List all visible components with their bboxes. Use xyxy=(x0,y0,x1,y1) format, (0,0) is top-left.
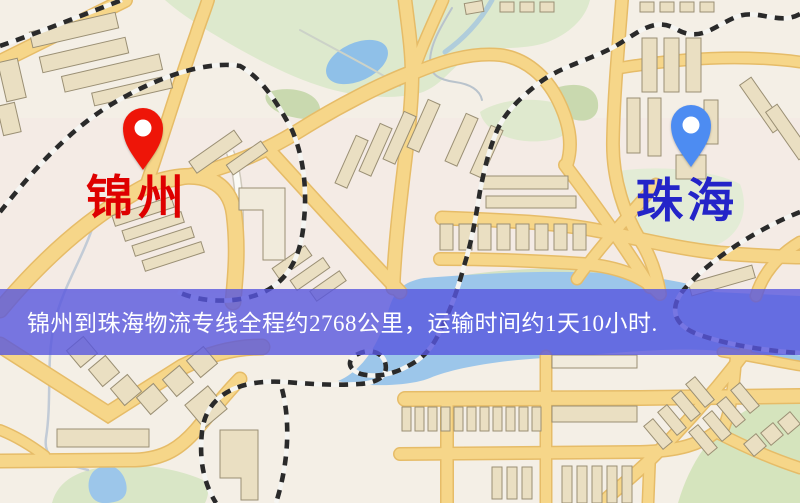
route-info-banner: 锦州到珠海物流专线全程约2768公里，运输时间约1天10小时. xyxy=(0,289,800,355)
map-canvas[interactable]: 锦州到珠海物流专线全程约2768公里，运输时间约1天10小时. 锦州 珠海 xyxy=(0,0,800,503)
base-map xyxy=(0,0,800,503)
destination-city-label: 珠海 xyxy=(636,179,738,226)
origin-city-label: 锦州 xyxy=(86,176,188,223)
destination-pin-icon[interactable] xyxy=(667,105,715,167)
route-info-text: 锦州到珠海物流专线全程约2768公里，运输时间约1天10小时. xyxy=(27,304,658,338)
origin-pin-icon[interactable] xyxy=(119,108,167,170)
